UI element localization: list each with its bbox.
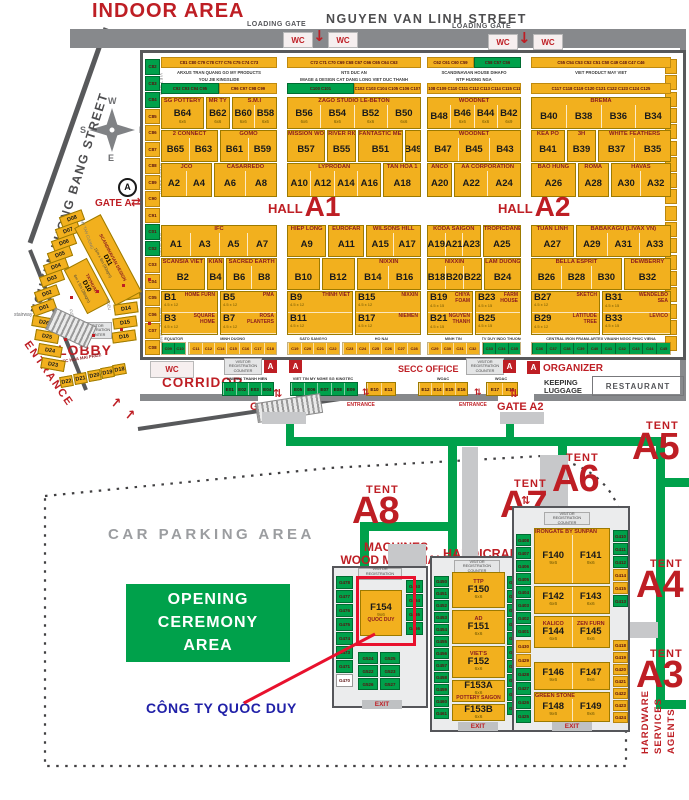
booth-group: IFCA1A3A5A7 bbox=[161, 225, 277, 257]
booth-id: B60 bbox=[235, 109, 252, 119]
booth-id: A8 bbox=[255, 179, 267, 189]
booth-G424: G424 bbox=[613, 712, 628, 723]
booth-G457: G457 bbox=[434, 660, 449, 671]
booth-group: S.M.IB606x6B586x6 bbox=[232, 97, 277, 129]
booth-C32: C32 bbox=[466, 343, 479, 354]
booth-id: B62 bbox=[209, 109, 226, 119]
organizer-label: ORGANIZER bbox=[543, 363, 603, 374]
booth-row: WOODNETB47B45B43 bbox=[427, 130, 521, 162]
booth-A23: A23 bbox=[462, 233, 480, 256]
booth-row: WOODNETB48B466x6B446x6B426x9 bbox=[427, 97, 521, 129]
booth-G407: G407 bbox=[516, 547, 531, 559]
company-callout-label: CÔNG TY QUỐC DUY bbox=[146, 700, 297, 716]
booth-C43: C43 bbox=[629, 343, 643, 354]
booth-row: B1HOME FURN4.5 x 12B3SQUARE HOME4.5 x 12… bbox=[161, 291, 277, 335]
booth-A21: A21 bbox=[445, 233, 463, 256]
booth-id: B43 bbox=[496, 145, 513, 155]
column-dot bbox=[148, 322, 151, 325]
booth-A25: A25 bbox=[484, 233, 520, 256]
booth-size: 4.5 x 12 bbox=[534, 325, 597, 330]
tent-a7: VISITOR REGISTRATION COUNTERG450G451G452… bbox=[430, 556, 522, 732]
booth-size: 4.5 x 15 bbox=[478, 324, 518, 329]
booth-F150: TTPF1506x6 bbox=[452, 572, 505, 608]
c-cells: C36C37C38C39C40C41C42C43C44C45 bbox=[531, 342, 671, 355]
indoor-area-title: INDOOR AREA bbox=[92, 0, 244, 23]
booth-size: 6x6 bbox=[587, 602, 595, 608]
booth-id: F144 bbox=[542, 627, 564, 637]
booth-group-name: WOODNET bbox=[428, 98, 520, 105]
booth-id: B56 bbox=[295, 109, 312, 119]
booth-size: 6x6 bbox=[475, 632, 483, 638]
booth-cells: A29A31A33 bbox=[577, 233, 670, 256]
c-booths: C96 C97 C98 C99 bbox=[219, 83, 277, 94]
booth-B50: B506x6 bbox=[387, 105, 420, 128]
booth-E15: E15 bbox=[443, 383, 455, 395]
booth-id: B54 bbox=[329, 109, 346, 119]
booth-group: BREMAB40B38B36B34 bbox=[531, 97, 671, 129]
booth-row: B10B12NIXXINB14B16 bbox=[287, 258, 421, 290]
hall-a1-label: HALLA1 bbox=[268, 195, 340, 219]
booth-C35: C35 bbox=[508, 343, 520, 354]
booth-B27: B27SKETCH4.5 x 12 bbox=[532, 292, 599, 313]
booth-group: BELLA ESPRITB26B28B30 bbox=[531, 258, 622, 290]
booth-G429: G429 bbox=[516, 654, 531, 667]
booth-group-name: WOODNET bbox=[428, 131, 520, 138]
booth-A1: A1 bbox=[162, 233, 190, 256]
booth-B41: B41 bbox=[532, 138, 564, 161]
booth-cells: B626x6 bbox=[207, 105, 229, 128]
booth-B48: B48 bbox=[428, 105, 450, 128]
c-booth-group: MINH TINC29C30C31C32 bbox=[427, 336, 480, 355]
booth-id: F145 bbox=[580, 627, 602, 637]
booth-group: B12 bbox=[322, 258, 355, 290]
booth-name: LEVICO bbox=[649, 314, 668, 320]
booth-C29: C29 bbox=[428, 343, 441, 354]
booth-group: FANTASTIC METALB51 bbox=[358, 130, 403, 162]
c-booth-row: MINH TINC29C30C31C32TV DUY INDO THUONGC3… bbox=[427, 336, 521, 355]
booth-id: F140 bbox=[542, 551, 564, 561]
booth-row: IFCA1A3A5A7 bbox=[161, 225, 277, 257]
booth-B25: B254.5 x 15 bbox=[476, 313, 520, 334]
booth-id: B65 bbox=[167, 145, 184, 155]
booth-subtitle: POTTERY SAIGON bbox=[456, 696, 500, 702]
booth-id: B20 bbox=[446, 273, 463, 283]
booth-group: HIEP LONGA9 bbox=[287, 225, 326, 257]
booth-id: A4 bbox=[193, 179, 205, 189]
booth-G458: G458 bbox=[434, 672, 449, 683]
booth-A11: A11 bbox=[329, 233, 363, 256]
booth-size: 6x6 bbox=[262, 119, 269, 124]
booth-G523: G523 bbox=[380, 665, 400, 677]
booth-id: B49 bbox=[405, 145, 421, 155]
booth-A27: A27 bbox=[532, 233, 573, 256]
booth-row: B27SKETCH4.5 x 12B29LATITUDE TREE4.5 x 1… bbox=[531, 291, 671, 335]
booth-id: A1 bbox=[170, 240, 182, 250]
booth-name: FARM HOUSE bbox=[495, 293, 518, 304]
c-booths: C92 C93 C94 C95 bbox=[161, 83, 219, 94]
booth-G419: G419 bbox=[613, 652, 628, 663]
booth-cells: A30A32 bbox=[612, 171, 670, 196]
booth-B12: B12 bbox=[323, 266, 354, 289]
wc-box: WC bbox=[150, 361, 194, 378]
booth-G477: G477 bbox=[336, 590, 353, 603]
booth-group: ANCOA20 bbox=[427, 163, 452, 197]
booth-size: 4.5 x 15 bbox=[430, 304, 470, 309]
booth-B58: B586x6 bbox=[254, 105, 276, 128]
booth-group: DEWBERRYB32 bbox=[624, 258, 671, 290]
booth-B38: B38 bbox=[566, 105, 601, 128]
booth-names-row: SCANDINAVIAN HOUSE DIHAFO bbox=[427, 69, 521, 76]
c-booths: C117 C118 C119 C120 C121 C122 C123 C124 … bbox=[531, 83, 671, 94]
booth-C41: C41 bbox=[601, 343, 615, 354]
booth-cells: B646x6 bbox=[162, 105, 203, 128]
booth-B44: B446x6 bbox=[474, 105, 497, 128]
booth-id: B30 bbox=[598, 273, 615, 283]
booth-names-row: NTP HUONG NGA bbox=[427, 76, 521, 83]
map-element: F1409x6F1419x6 bbox=[535, 535, 609, 583]
booth-B32: B32 bbox=[625, 266, 670, 289]
secc-logo-icon: A bbox=[289, 360, 302, 373]
booth-id: B32 bbox=[639, 273, 656, 283]
booth-E14: E14 bbox=[431, 383, 443, 395]
svg-text:E: E bbox=[108, 153, 114, 163]
booth-group-name: KEA PO bbox=[532, 131, 564, 138]
booth-pair: IRONGATE BY SUNPANF1409x6F1419x6 bbox=[534, 528, 610, 584]
booth-G456: G456 bbox=[434, 648, 449, 659]
keeping-luggage-label: KEEPINGLUGGAGE bbox=[544, 379, 582, 395]
exit-label: EXIT bbox=[362, 700, 402, 709]
booth-size: 6x6 bbox=[400, 119, 407, 124]
booth-id: B52 bbox=[362, 109, 379, 119]
road-block bbox=[262, 412, 306, 424]
booth-C12: C12 bbox=[202, 343, 214, 354]
booth-B51: B51 bbox=[359, 138, 402, 161]
gate-a-label: GATE A bbox=[95, 198, 132, 209]
booth-A28: A28 bbox=[579, 171, 608, 196]
booth-id: B7 bbox=[223, 314, 235, 324]
booth-A33: A33 bbox=[639, 233, 670, 256]
c-booth-strip: C100 C101C102 C103 C104 C105 C106 C107 bbox=[287, 83, 421, 94]
c-booth-strip: C108 C109 C110 C111 C112 C113 C114 C115 … bbox=[427, 83, 521, 94]
e-booth-bar: E05E06E07E08E09 bbox=[290, 382, 358, 396]
booth-A19: A19 bbox=[428, 233, 445, 256]
booth-row: KODA SAIGONA19A21A23TROPICDANEA25 bbox=[427, 225, 521, 257]
booth-B15: B15NIXXIN4.5 x 12 bbox=[356, 292, 420, 313]
booth-A22: A22 bbox=[455, 171, 487, 196]
booth-size: 4.5 x 15 bbox=[605, 324, 668, 329]
booth-id: B23 bbox=[478, 293, 495, 303]
booth-id: B38 bbox=[575, 112, 592, 122]
booth-C86: C86 bbox=[145, 125, 160, 141]
booth-group-name: FANTASTIC METAL bbox=[359, 131, 402, 138]
booth-C44: C44 bbox=[642, 343, 656, 354]
booth-name: SKETCH bbox=[576, 293, 597, 299]
exhibition-floor-plan: W N S E INDOOR AREA NGUYEN VAN LINH STRE… bbox=[0, 0, 689, 800]
booth-C09: C09 bbox=[162, 343, 174, 354]
booth-G524: G524 bbox=[358, 652, 378, 664]
booth-G408: G408 bbox=[516, 534, 531, 546]
c-booth-row: EQUATORC09C10MINH DUONGC11C12C14C15C16C1… bbox=[161, 336, 277, 355]
booth-id: B59 bbox=[254, 145, 271, 155]
booth-B56: B566x6 bbox=[288, 105, 320, 128]
c-cells: C11C12C14C15C16C17C18 bbox=[188, 342, 277, 355]
booth-size: 6x6 bbox=[475, 715, 483, 721]
booth-A2: A2 bbox=[162, 171, 186, 196]
booth-C38: C38 bbox=[560, 343, 574, 354]
booth-G401: G401 bbox=[516, 625, 531, 637]
booth-cells: A2A4 bbox=[162, 171, 211, 196]
secc-office-label: SECC OFFICE bbox=[398, 364, 459, 374]
booth-A18: A18 bbox=[384, 171, 420, 196]
booth-cells: B2 bbox=[162, 266, 204, 289]
map-element bbox=[161, 197, 277, 225]
booth-id: B55 bbox=[333, 145, 350, 155]
booth-name: THINH VIET bbox=[322, 293, 350, 299]
booth-group: HAVASA30A32 bbox=[611, 163, 671, 197]
wc-box: WC bbox=[488, 34, 518, 50]
booth-C91: C91 bbox=[145, 208, 160, 224]
booth-C10: C10 bbox=[174, 343, 186, 354]
visitor-registration-counter: VISITOR REGISTRATION COUNTER bbox=[544, 512, 590, 525]
booth-B43: B43 bbox=[489, 138, 520, 161]
booth-F146: F1469x6 bbox=[535, 663, 572, 689]
booth-id: F151 bbox=[468, 622, 490, 632]
booth-cells: B24 bbox=[485, 266, 520, 289]
booth-name: PMA bbox=[263, 293, 274, 299]
direction-arrow-icon: ⇅ bbox=[474, 388, 482, 398]
c-cells: C29C30C31C32 bbox=[427, 342, 480, 355]
booth-cells: B47B45B43 bbox=[428, 138, 520, 161]
booth-id: A12 bbox=[314, 179, 331, 189]
c-booths: C102 C103 C104 C105 C106 C107 bbox=[354, 83, 421, 94]
booth-F148: F1489x6 bbox=[535, 699, 572, 721]
booth-group-name: LAM DUONG bbox=[485, 259, 520, 266]
wc-box: WC bbox=[328, 32, 358, 48]
booth-F151: ADF1516x6 bbox=[452, 610, 505, 644]
entrance-label-2: ENTRANCE bbox=[459, 402, 487, 408]
booth-C82: C82 bbox=[145, 59, 160, 75]
booth-size: 6x6 bbox=[301, 119, 308, 124]
booth-B14: B14 bbox=[358, 266, 389, 289]
booth-B23: B23FARM HOUSE4.5 x 15 bbox=[476, 292, 520, 313]
booth-size: 6x6 bbox=[482, 119, 489, 124]
booth-id: B40 bbox=[540, 112, 557, 122]
booth-id: A29 bbox=[583, 240, 600, 250]
booth-cells: B26B28B30 bbox=[532, 266, 621, 289]
booth-B33: B33LEVICO4.5 x 15 bbox=[603, 313, 670, 334]
booth-name: WENDELBO SEA bbox=[630, 293, 668, 304]
booth-D21: D21 bbox=[73, 372, 88, 385]
booth-id: B45 bbox=[465, 145, 482, 155]
booth-B18: B18 bbox=[428, 266, 445, 289]
booth-group-name: BREMA bbox=[532, 98, 670, 105]
booth-group-name: MISSION WOOD bbox=[288, 131, 324, 138]
booth-id: F142 bbox=[542, 592, 564, 602]
tent-a8-label: A8 bbox=[352, 495, 399, 527]
direction-arrow-icon: ↑ bbox=[120, 406, 138, 425]
booth-A29: A29 bbox=[577, 233, 607, 256]
booth-id: F153B bbox=[464, 705, 493, 715]
booth-cells: B606x6B586x6 bbox=[233, 105, 276, 128]
booth-E16: E16 bbox=[455, 383, 467, 395]
booth-id: A14 bbox=[337, 179, 354, 189]
booth-id: A17 bbox=[398, 240, 415, 250]
booth-size: 6x6 bbox=[475, 667, 483, 673]
booth-stack: B27SKETCH4.5 x 12B29LATITUDE TREE4.5 x 1… bbox=[531, 291, 600, 335]
booth-group-name: KIAN bbox=[208, 259, 224, 266]
booth-C40: C40 bbox=[587, 343, 601, 354]
booth-size: 4.5 x 15 bbox=[605, 304, 668, 309]
visitor-registration-counter: VISITOR REGISTRATION COUNTER bbox=[224, 358, 262, 375]
booth-names-row: VIET PRODUCT MAY VIET bbox=[531, 69, 671, 76]
booth-cells: B61B59 bbox=[221, 138, 276, 161]
booth-cells: A28 bbox=[579, 171, 608, 196]
booth-C36: C36 bbox=[532, 343, 546, 354]
c-booth-group: EQUATORC09C10 bbox=[161, 336, 186, 355]
booth-group-name: TAN HOA 1 bbox=[384, 164, 420, 171]
booth-E08: E08 bbox=[331, 383, 344, 395]
booth-cells: A20 bbox=[428, 171, 451, 196]
booth-name: NIXXIN bbox=[401, 293, 418, 299]
c-booth-group: SATO SANGYOC19C20C21C22 bbox=[287, 336, 340, 355]
booth-id: A21 bbox=[445, 240, 462, 250]
booth-id: B47 bbox=[434, 145, 451, 155]
booth-B65: B65 bbox=[162, 138, 189, 161]
booth-cells: B18B20B22 bbox=[428, 266, 481, 289]
booth-B5: B5PMA4.5 x 12 bbox=[221, 292, 276, 313]
booth-B62: B626x6 bbox=[207, 105, 229, 128]
booth-E12: E12 bbox=[419, 383, 431, 395]
booth-group: B49 bbox=[405, 130, 421, 162]
booth-id: F143 bbox=[580, 592, 602, 602]
booth-id: A11 bbox=[338, 240, 355, 250]
booth-group: RIVER RICHB55 bbox=[327, 130, 356, 162]
booth-cells: A11 bbox=[329, 233, 363, 256]
booth-C84: C84 bbox=[145, 92, 160, 108]
booth-D15: D15 bbox=[112, 315, 137, 329]
booth-C89: C89 bbox=[145, 175, 160, 191]
wc-box: WC bbox=[533, 34, 563, 50]
booth-cells: A6A8 bbox=[215, 171, 276, 196]
booth-C31: C31 bbox=[453, 343, 466, 354]
exhibitor-names: UNIMAX THANH HIEN bbox=[222, 376, 272, 381]
booth-cells: A18 bbox=[384, 171, 420, 196]
restaurant-label: RESTAURANT bbox=[592, 376, 684, 396]
booth-id: B50 bbox=[395, 109, 412, 119]
booth-size: 6x6 bbox=[475, 595, 483, 601]
c-booths: C55 C54 C53 C52 C51 C50 C49 C48 C47 C46 bbox=[531, 57, 671, 68]
booth-A5: A5 bbox=[219, 233, 248, 256]
exit-label: EXIT bbox=[458, 722, 498, 731]
booth-cells: B55 bbox=[328, 138, 355, 161]
booth-G452: G452 bbox=[434, 600, 449, 611]
booth-A32: A32 bbox=[640, 171, 670, 196]
booth-group: 3HB39 bbox=[567, 130, 596, 162]
booth-G427: G427 bbox=[516, 682, 531, 695]
booth-row: HIEP LONGA9EUROFARA11WILSONS HILLA15A17 bbox=[287, 225, 421, 257]
booth-C37: C37 bbox=[546, 343, 560, 354]
booth-E05: E05 bbox=[291, 383, 304, 395]
booth-group: 2 CONNECTB65B63 bbox=[161, 130, 218, 162]
booth-id: B29 bbox=[534, 314, 551, 324]
secc-logo-icon: A bbox=[264, 360, 277, 373]
booth-group: NIXXINB14B16 bbox=[357, 258, 422, 290]
c-booth-strip: C92 C93 C94 C95C96 C97 C98 C99 bbox=[161, 83, 277, 94]
booth-id: B64 bbox=[174, 109, 191, 119]
booth-E02: E02 bbox=[236, 383, 249, 395]
booth-C25: C25 bbox=[369, 343, 382, 354]
booth-pair: F1426x6F1436x6 bbox=[534, 586, 610, 614]
booth-cells: A19A21A23 bbox=[428, 233, 480, 256]
booth-C02: C02 bbox=[145, 241, 160, 257]
booth-group-name: ZAGO STUDIO LE-BETON bbox=[288, 98, 420, 105]
booth-group-name: BABAKAGU (LIVAX VN) bbox=[577, 226, 670, 233]
booth-pair: F1469x6F1479x6 bbox=[534, 662, 610, 690]
booth-names-row: IMAGE & DESIGN CAT DANG LONG VIET DUC TH… bbox=[287, 76, 421, 83]
booth-id: B19 bbox=[430, 293, 447, 303]
booth-id: B61 bbox=[226, 145, 243, 155]
booth-size: 6x6 bbox=[587, 637, 595, 643]
booth-id: F148 bbox=[542, 702, 564, 712]
booth-B52: B526x6 bbox=[354, 105, 387, 128]
booth-id: A32 bbox=[647, 179, 664, 189]
booth-C07: C07 bbox=[145, 323, 160, 339]
booth-C33: C33 bbox=[483, 343, 495, 354]
c-booth-strip: C81 C80 C79 C78 C77 C76 C75 C74 C73 bbox=[161, 57, 277, 68]
booth-id: B58 bbox=[257, 109, 274, 119]
booth-B61: B61 bbox=[221, 138, 248, 161]
booth-B17: B17NIEMEN4.5 x 12 bbox=[356, 313, 420, 334]
booth-group-name: BELLA ESPRIT bbox=[532, 259, 621, 266]
booth-B30: B30 bbox=[591, 266, 621, 289]
booth-id: B26 bbox=[538, 273, 555, 283]
booth-B19: B19CHIYA FOAM4.5 x 15 bbox=[428, 292, 472, 313]
booth-C88: C88 bbox=[145, 158, 160, 174]
booth-G459: G459 bbox=[434, 684, 449, 695]
booth-A15: A15 bbox=[367, 233, 393, 256]
booth-cells: B37B35 bbox=[599, 138, 670, 161]
tent-a6-label: A6 bbox=[552, 463, 599, 495]
booth-B24: B24 bbox=[485, 266, 520, 289]
booth-C34: C34 bbox=[495, 343, 507, 354]
booth-name: LATITUDE TREE bbox=[559, 314, 597, 325]
booth-group-name: EUROFAR bbox=[329, 226, 363, 233]
booth-id: B18 bbox=[428, 273, 445, 283]
booth-row: KEA POB413HB39WHITE FEATHERSB37B35 bbox=[531, 130, 671, 162]
booth-C06: C06 bbox=[145, 307, 160, 323]
booth-group-name: TUAN LINH bbox=[532, 226, 573, 233]
map-element: F1426x6F1436x6 bbox=[535, 587, 609, 613]
booth-F149: F1499x6 bbox=[572, 699, 610, 721]
booth-group: CASARREDOA6A8 bbox=[214, 163, 277, 197]
booth-G453: G453 bbox=[434, 612, 449, 623]
booth-id: A28 bbox=[585, 179, 602, 189]
booth-cells: B65B63 bbox=[162, 138, 217, 161]
booth-B63: B63 bbox=[189, 138, 217, 161]
booth-row: BELLA ESPRITB26B28B30DEWBERRYB32 bbox=[531, 258, 671, 290]
booth-F145: ZEN FURNF1456x6 bbox=[572, 617, 610, 647]
booth-G475: G475 bbox=[336, 618, 353, 631]
booth-A16: A16 bbox=[357, 171, 380, 196]
booth-id: B14 bbox=[364, 273, 381, 283]
booth-B37: B37 bbox=[599, 138, 634, 161]
booth-A8: A8 bbox=[245, 171, 276, 196]
booth-id: B16 bbox=[396, 273, 413, 283]
c-booth-strip: C117 C118 C119 C120 C121 C122 C123 C124 … bbox=[531, 83, 671, 94]
booth-D18: D18 bbox=[112, 363, 127, 376]
c-cells: C33C34C35 bbox=[482, 342, 521, 355]
booth-C27: C27 bbox=[394, 343, 407, 354]
